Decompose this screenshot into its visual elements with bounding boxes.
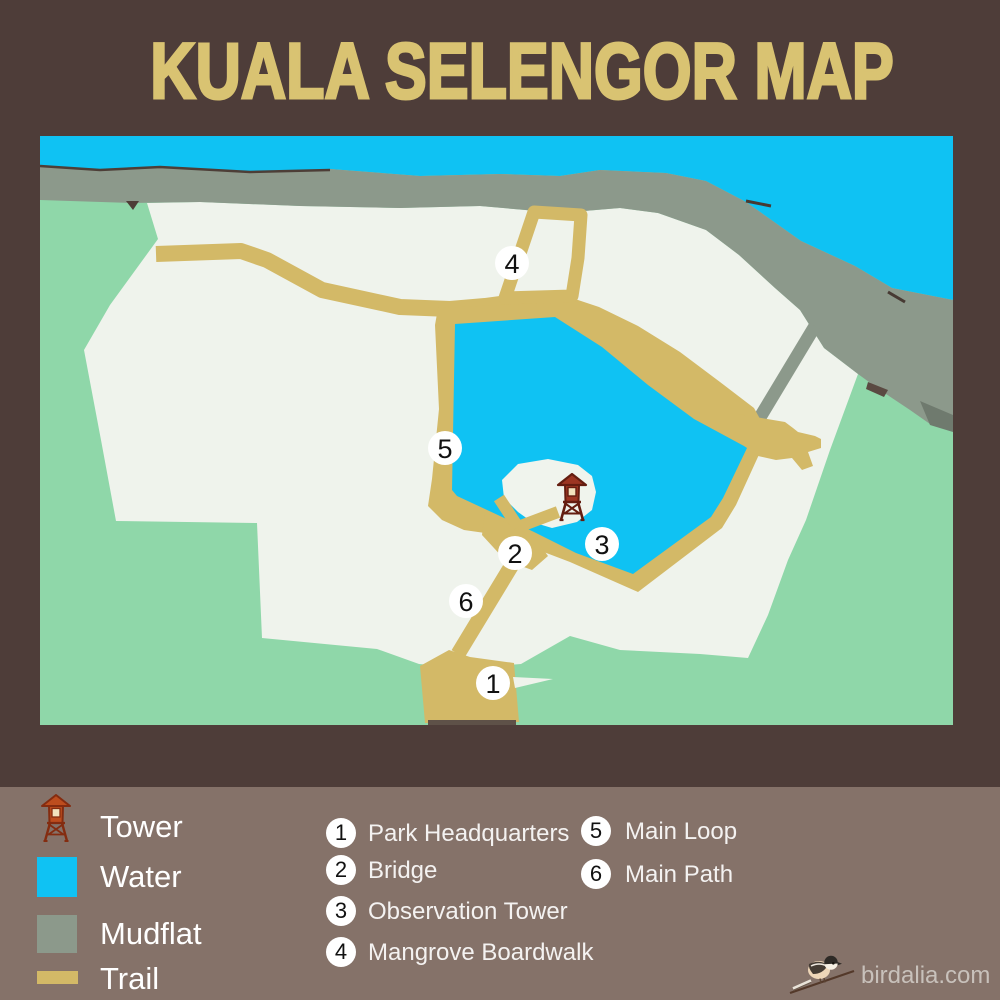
svg-text:2: 2 xyxy=(507,539,522,569)
svg-text:1: 1 xyxy=(485,669,500,699)
svg-text:4: 4 xyxy=(504,249,519,279)
svg-text:5: 5 xyxy=(437,434,452,464)
svg-text:3: 3 xyxy=(594,530,609,560)
svg-text:6: 6 xyxy=(458,587,473,617)
